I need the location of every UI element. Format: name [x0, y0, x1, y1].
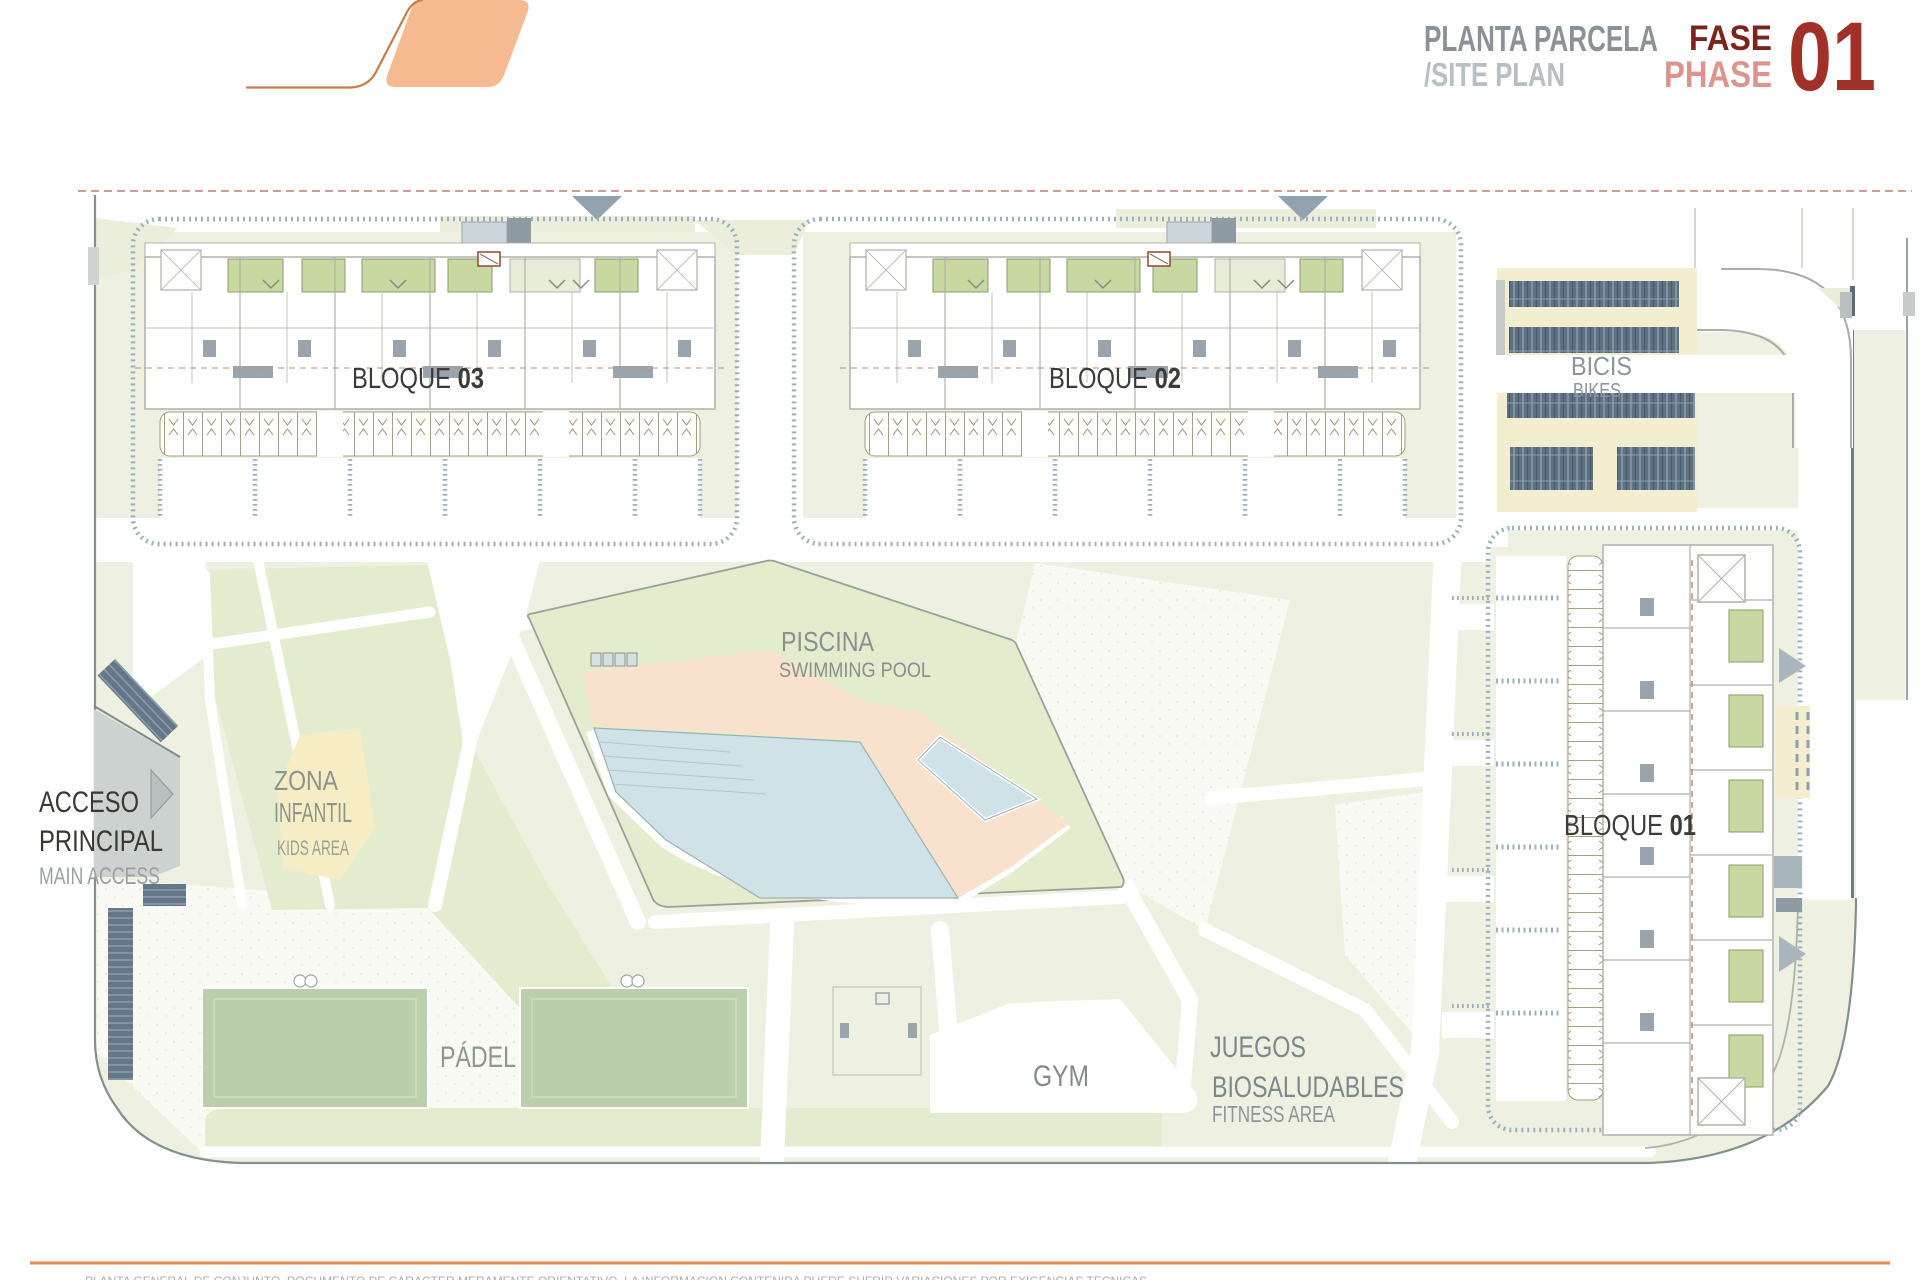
svg-text:JUEGOS: JUEGOS: [1210, 1031, 1306, 1064]
svg-text:PRINCIPAL: PRINCIPAL: [39, 825, 163, 858]
svg-text:ZONA: ZONA: [274, 765, 338, 796]
svg-text:KIDS AREA: KIDS AREA: [277, 837, 349, 860]
svg-text:PÁDEL: PÁDEL: [440, 1041, 516, 1074]
svg-text:PLANTA GENERAL DE CONJUNTO. DO: PLANTA GENERAL DE CONJUNTO. DOCUMENTO DE…: [85, 1274, 1151, 1280]
svg-text:SWIMMING POOL: SWIMMING POOL: [779, 659, 931, 682]
svg-text:INFANTIL: INFANTIL: [274, 797, 352, 828]
svg-text:FITNESS AREA: FITNESS AREA: [1212, 1101, 1335, 1127]
svg-text:BIKES: BIKES: [1573, 380, 1621, 402]
svg-text:MAIN ACCESS: MAIN ACCESS: [39, 863, 160, 890]
svg-text:GYM: GYM: [1033, 1060, 1089, 1093]
svg-text:01: 01: [1788, 2, 1876, 111]
svg-text:ACCESO: ACCESO: [39, 786, 139, 819]
svg-text:BICIS: BICIS: [1571, 351, 1632, 381]
svg-text:/SITE PLAN: /SITE PLAN: [1424, 56, 1565, 93]
svg-text:PHASE: PHASE: [1664, 54, 1772, 95]
svg-text:PISCINA: PISCINA: [781, 626, 874, 657]
svg-text:BLOQUE 01: BLOQUE 01: [1564, 810, 1696, 842]
svg-text:FASE: FASE: [1689, 19, 1772, 58]
svg-text:BLOQUE 03: BLOQUE 03: [352, 363, 484, 395]
svg-text:BLOQUE 02: BLOQUE 02: [1049, 363, 1181, 395]
svg-text:PLANTA PARCELA: PLANTA PARCELA: [1424, 18, 1658, 59]
svg-text:BIOSALUDABLES: BIOSALUDABLES: [1212, 1071, 1404, 1104]
